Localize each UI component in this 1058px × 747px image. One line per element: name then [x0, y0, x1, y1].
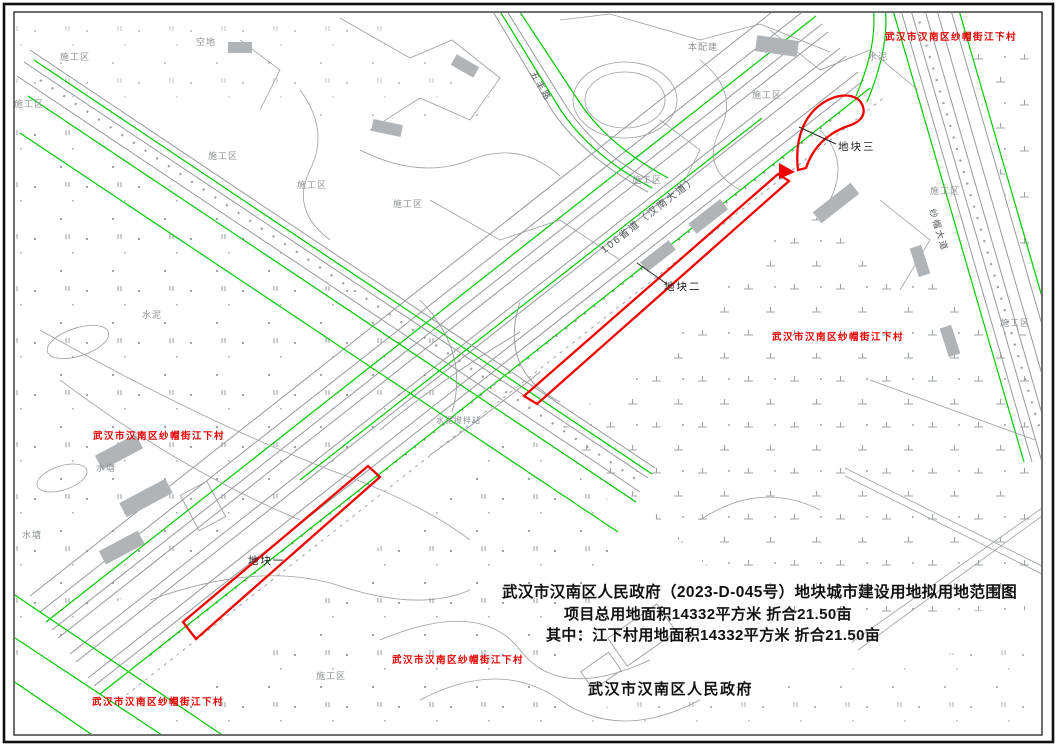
village-label-bottom-center: 武汉市汉南区纱帽街江下村 [392, 656, 524, 666]
parcel-arrow-tip [779, 163, 795, 179]
area-label-construction: 施工区 [1000, 319, 1030, 328]
area-label-construction: 施工区 [297, 181, 327, 190]
parcel-label-3: 地块三 [838, 142, 876, 153]
area-label-vacant: 空地 [196, 38, 216, 47]
area-label-mixing-station: 水泥搅拌站 [436, 417, 481, 425]
parcel-label-1: 地块一 [248, 556, 286, 567]
village-label-left: 武汉市汉南区纱帽街江下村 [93, 432, 225, 442]
bottom-left-green-lines [0, 585, 240, 747]
area-label-construction: 施工区 [60, 53, 90, 62]
map-subarea: 其中：江下村用地面积14332平方米 折合21.50亩 [546, 624, 880, 645]
area-label-pond: 水塘 [22, 531, 42, 540]
area-label-cement: 水泥 [142, 311, 162, 320]
area-label-construction: 施工区 [208, 152, 238, 161]
planning-map: 武汉市汉南区纱帽街江下村 武汉市汉南区纱帽街江下村 武汉市汉南区纱帽街江下村 武… [0, 0, 1058, 747]
terrain-symbol-fills [14, 12, 1035, 745]
area-label-construction: 施工区 [393, 200, 423, 209]
area-label-pond: 水塘 [96, 464, 116, 473]
map-linework-layer [0, 0, 1058, 747]
top-center-road [486, 0, 668, 192]
area-label-facility: 本配建 [688, 43, 718, 52]
map-total-area: 项目总用地面积14332平方米 折合21.50亩 [564, 603, 852, 624]
map-signature: 武汉市汉南区人民政府 [588, 678, 753, 699]
area-label-construction: 施工区 [632, 176, 662, 185]
area-label-construction: 施工区 [752, 91, 782, 100]
village-label-bottom-left: 武汉市汉南区纱帽街江下村 [92, 698, 224, 708]
area-label-construction: 施工区 [930, 187, 960, 196]
village-label-top-right: 武汉市汉南区纱帽街江下村 [885, 33, 1017, 43]
village-label-center-right: 武汉市汉南区纱帽街江下村 [772, 333, 904, 343]
area-label-construction: 施工区 [14, 100, 44, 109]
parcel-label-2: 地块二 [664, 282, 702, 293]
area-label-construction: 施工区 [316, 672, 346, 681]
area-label-cement: 水泥 [868, 53, 888, 62]
map-title: 武汉市汉南区人民政府（2023-D-045号）地块城市建设用地拟用地范围图 [502, 580, 1017, 602]
